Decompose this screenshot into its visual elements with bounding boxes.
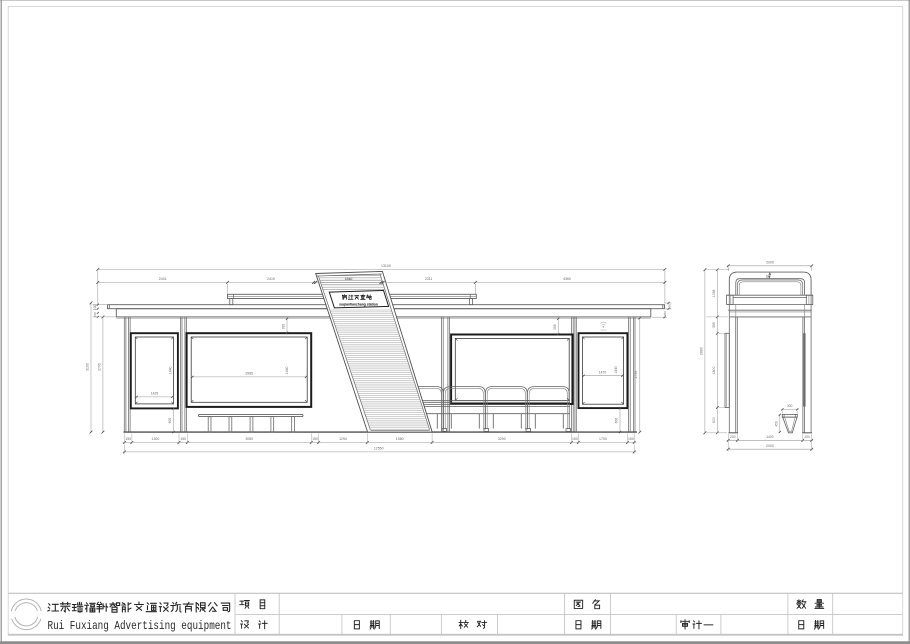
svg-text:2795: 2795	[634, 371, 638, 379]
svg-text:2311: 2311	[425, 277, 433, 281]
svg-text:2401: 2401	[159, 277, 167, 281]
svg-text:200: 200	[730, 435, 736, 439]
svg-text:395: 395	[553, 324, 557, 330]
svg-text:2000: 2000	[766, 444, 774, 448]
svg-text:150: 150	[628, 437, 634, 441]
svg-text:2795: 2795	[97, 363, 101, 371]
svg-text:200: 200	[804, 435, 810, 439]
svg-text:Rui Fuxiang Advertising equipm: Rui Fuxiang Advertising equipment	[48, 619, 232, 633]
svg-text:1700: 1700	[599, 437, 607, 441]
svg-text:600: 600	[168, 418, 172, 424]
svg-text:4360: 4360	[563, 277, 571, 281]
svg-text:3290: 3290	[498, 437, 506, 441]
svg-text:395: 395	[712, 322, 716, 328]
svg-text:1580: 1580	[396, 437, 404, 441]
svg-text:1440: 1440	[285, 366, 289, 374]
svg-text:1540: 1540	[345, 277, 353, 281]
svg-text:100: 100	[93, 305, 97, 311]
svg-text:1400: 1400	[766, 435, 774, 439]
svg-text:600: 600	[712, 417, 716, 423]
svg-text:13100: 13100	[381, 264, 391, 268]
svg-text:200: 200	[663, 311, 667, 316]
svg-text:12550: 12550	[374, 447, 384, 451]
svg-text:450: 450	[774, 421, 778, 427]
svg-text:1300: 1300	[152, 437, 160, 441]
svg-text:suqiantianzhang station: suqiantianzhang station	[339, 303, 378, 307]
svg-text:2985: 2985	[245, 372, 253, 376]
svg-text:395: 395	[282, 324, 286, 330]
svg-text:150: 150	[125, 437, 131, 441]
svg-text:2000: 2000	[766, 260, 774, 264]
svg-text:1800: 1800	[712, 366, 716, 374]
svg-text:150: 150	[180, 437, 186, 441]
svg-text:150: 150	[93, 312, 97, 317]
svg-text:150: 150	[312, 437, 318, 441]
svg-text:1294: 1294	[339, 437, 347, 441]
svg-text:1058: 1058	[712, 290, 716, 298]
svg-text:600: 600	[615, 418, 619, 424]
svg-text:3050: 3050	[245, 437, 253, 441]
svg-text:100: 100	[667, 304, 671, 309]
svg-text:150: 150	[572, 437, 578, 441]
svg-text:WiFi: WiFi	[601, 328, 607, 332]
svg-text:1429: 1429	[151, 392, 159, 396]
svg-text:300: 300	[787, 404, 793, 408]
svg-text:1440: 1440	[614, 366, 618, 374]
svg-text:1440: 1440	[169, 366, 173, 374]
svg-text:3100: 3100	[86, 363, 90, 371]
svg-text:2880: 2880	[699, 347, 703, 355]
svg-text:1470: 1470	[599, 370, 607, 374]
svg-text:2419: 2419	[267, 277, 275, 281]
